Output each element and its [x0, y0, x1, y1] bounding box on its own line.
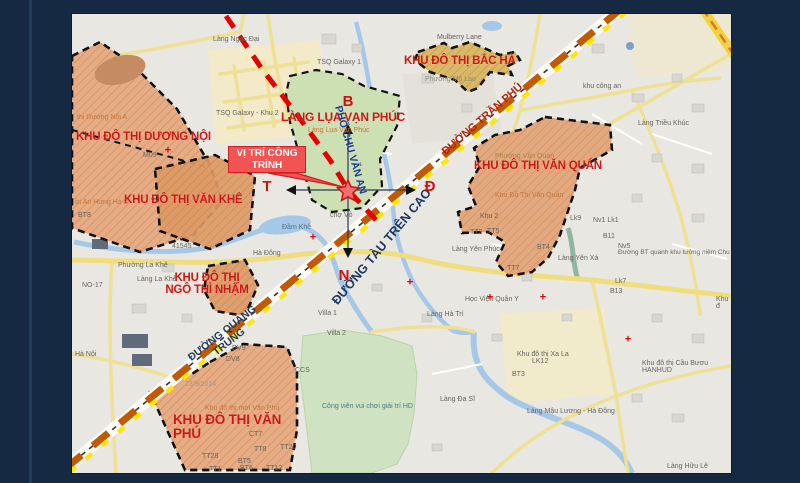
- place-label: Lk7: [615, 278, 626, 285]
- compass-letter-Đ: Đ: [425, 179, 436, 195]
- place-label: CT7: [249, 431, 262, 438]
- slide-background: VỊ TRÍ CÔNG TRÌNH KHU ĐÔ THỊ DƯƠNG NỘIKH…: [0, 0, 800, 483]
- callout-line1: VỊ TRÍ CÔNG: [236, 148, 297, 160]
- zone-label-bac-ha: KHU ĐÔ THỊ BẮC HÀ: [404, 55, 516, 67]
- place-label: thị Dương Nội A: [77, 114, 127, 121]
- road-label-tran-phu: ĐƯỜNG TRẦN PHÚ: [440, 82, 525, 158]
- place-label: Làng Mậu Lương - Hà Đông: [527, 408, 615, 415]
- place-label: Làng Đa Sĩ: [440, 396, 475, 403]
- place-label: Khu đô thị mới Văn Phú: [205, 405, 279, 412]
- place-label: BT6: [240, 465, 253, 472]
- place-label: Đầm Khê: [282, 224, 311, 231]
- hospital-cross-icon: +: [165, 146, 171, 157]
- place-label: Hà Đông: [253, 250, 281, 257]
- place-label: TT3: [470, 229, 482, 236]
- place-label: 41545: [172, 243, 191, 250]
- zone-label-van-phu: KHU ĐÔ THỊ VĂN PHÚ: [173, 413, 281, 441]
- compass-letter-T: T: [262, 179, 271, 195]
- site-callout-box: VỊ TRÍ CÔNG TRÌNH: [228, 146, 306, 173]
- map-canvas: VỊ TRÍ CÔNG TRÌNH KHU ĐÔ THỊ DƯƠNG NỘIKH…: [72, 14, 731, 473]
- place-label: DV8: [226, 356, 240, 363]
- hospital-cross-icon: +: [487, 293, 493, 304]
- place-label: TT7: [507, 265, 519, 272]
- place-label: 23/9/2014: [185, 381, 216, 388]
- place-label: Khu đô thị Cầu Bươu HANHUD: [642, 360, 731, 375]
- place-label: Mulberry Lane: [437, 34, 482, 41]
- place-label: NO-17: [82, 282, 103, 289]
- place-label: ời An Hưng Hà Đ: [75, 199, 129, 206]
- place-label: TT1: [209, 466, 221, 473]
- place-label: Làng Yên Phúc: [452, 246, 500, 253]
- place-label: CCS: [295, 367, 310, 374]
- compass-letter-B: B: [343, 94, 354, 110]
- place-label: Villa 1: [318, 310, 337, 317]
- place-label: Làng Hữu Lê: [667, 463, 708, 470]
- place-label: TT5: [487, 228, 499, 235]
- place-label: Khu Đô Thị Văn Quán: [495, 192, 563, 199]
- place-label: Làng Yên Xá: [558, 255, 598, 262]
- hospital-cross-icon: +: [407, 278, 413, 289]
- hospital-cross-icon: +: [540, 293, 546, 304]
- place-label: TSQ Galaxy - Khu 2: [216, 110, 279, 117]
- zone-label-duong-noi: KHU ĐÔ THỊ DƯƠNG NỘI: [76, 131, 211, 143]
- place-label: B13: [610, 288, 622, 295]
- place-label: Làng Lụa Vạn Phúc: [308, 127, 370, 134]
- place-label: Làng Triều Khúc: [638, 120, 689, 127]
- place-label: Nv1 Lk1: [593, 217, 619, 224]
- place-label: DV9: [232, 345, 246, 352]
- callout-line2: TRÌNH: [252, 160, 283, 172]
- road-label-tau-tren-cao: ĐƯỜNG TÀU TRÊN CAO: [330, 187, 434, 308]
- compass-letter-N: N: [339, 268, 350, 284]
- place-label: Phường Văn Quán: [495, 153, 554, 160]
- place-label: Khu đ: [716, 296, 731, 311]
- place-label: B11: [603, 233, 615, 240]
- place-label: Lk9: [570, 215, 581, 222]
- place-label: BT8: [78, 212, 91, 219]
- place-label: Khu 2: [480, 213, 498, 220]
- place-label: Làng Ngọc Đại: [213, 36, 259, 43]
- place-label: BT4: [537, 244, 550, 251]
- place-label: BT3: [512, 371, 525, 378]
- place-label: Hà Nội: [75, 351, 96, 358]
- place-label: TT12: [266, 465, 282, 472]
- place-label: TSQ Galaxy 1: [317, 59, 361, 66]
- place-label: TT28: [202, 453, 218, 460]
- place-label: LK12: [532, 358, 548, 365]
- hospital-cross-icon: +: [625, 335, 631, 346]
- hospital-cross-icon: +: [310, 233, 316, 244]
- place-label: TT20: [280, 444, 296, 451]
- place-label: Công viên vui chơi giải trí HD: [322, 403, 413, 410]
- place-label: TT8: [254, 446, 266, 453]
- zone-label-van-khe: KHU ĐÔ THỊ VĂN KHÊ: [124, 194, 242, 206]
- slide-edge-stripe: [29, 0, 32, 483]
- place-label: Villa 2: [327, 330, 346, 337]
- place-label: Làng La Khê: [137, 276, 177, 283]
- place-label: Phường Mộ Lao: [425, 76, 476, 83]
- map-labels-layer: KHU ĐÔ THỊ DƯƠNG NỘIKHU ĐÔ THỊ VĂN KHÊKH…: [72, 14, 731, 473]
- place-label: Làng Hà Trì: [427, 311, 464, 318]
- place-label: chợ Vồ: [330, 212, 353, 219]
- zone-label-van-quan: KHU ĐÔ THỊ VĂN QUÁN: [474, 160, 602, 172]
- place-label: Phường La Khê: [118, 262, 168, 269]
- place-label: khu công an: [583, 83, 621, 90]
- place-label: M09: [143, 152, 157, 159]
- place-label: Đường BT quanh khu tưởng niệm Chu: [618, 250, 730, 257]
